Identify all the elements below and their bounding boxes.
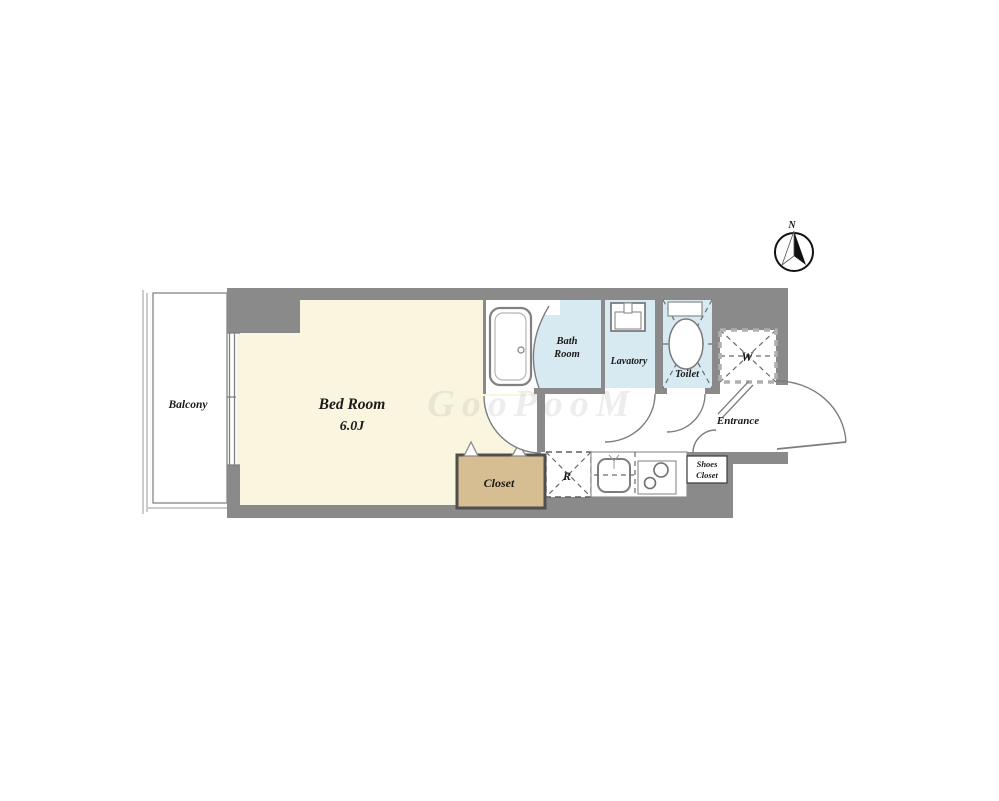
closet-label: Closet bbox=[484, 476, 515, 490]
bathroom-area bbox=[486, 300, 601, 394]
entrance-doorway-opening bbox=[776, 386, 788, 452]
floor-plan-drawing: GooPooM Balcony Bed Room 6.0J Bath Room … bbox=[0, 0, 999, 801]
floor-plan-page: GooPooM Balcony Bed Room 6.0J Bath Room … bbox=[0, 0, 999, 801]
shoes-closet-label-line1: Shoes bbox=[697, 459, 718, 469]
compass-icon: N bbox=[775, 220, 813, 271]
kitchen-sink-icon bbox=[594, 455, 634, 492]
balcony-railing bbox=[143, 290, 147, 514]
bedroom-size-label: 6.0J bbox=[340, 419, 366, 434]
bathroom-label-line2: Room bbox=[553, 349, 580, 360]
lavatory-sink-icon bbox=[611, 303, 645, 331]
balcony-label: Balcony bbox=[168, 399, 209, 411]
wardrobe-label: W bbox=[741, 349, 754, 364]
watermark-text: GooPooM bbox=[427, 383, 636, 425]
wall-top-left-notch bbox=[227, 288, 300, 333]
toilet-label: Toilet bbox=[675, 369, 700, 380]
lavatory-label: Lavatory bbox=[610, 356, 648, 367]
entrance-label: Entrance bbox=[716, 415, 759, 427]
compass-label: N bbox=[787, 220, 796, 231]
shoes-closet-label-line2: Closet bbox=[696, 470, 718, 480]
toilet-icon bbox=[668, 302, 703, 369]
lavatory-area bbox=[605, 300, 655, 388]
bedroom-label: Bed Room bbox=[318, 396, 386, 413]
bathtub-icon bbox=[490, 308, 531, 385]
bathroom-label-line1: Bath bbox=[555, 336, 577, 347]
refrigerator-label: R bbox=[562, 469, 571, 483]
kitchen-counter bbox=[591, 452, 687, 497]
